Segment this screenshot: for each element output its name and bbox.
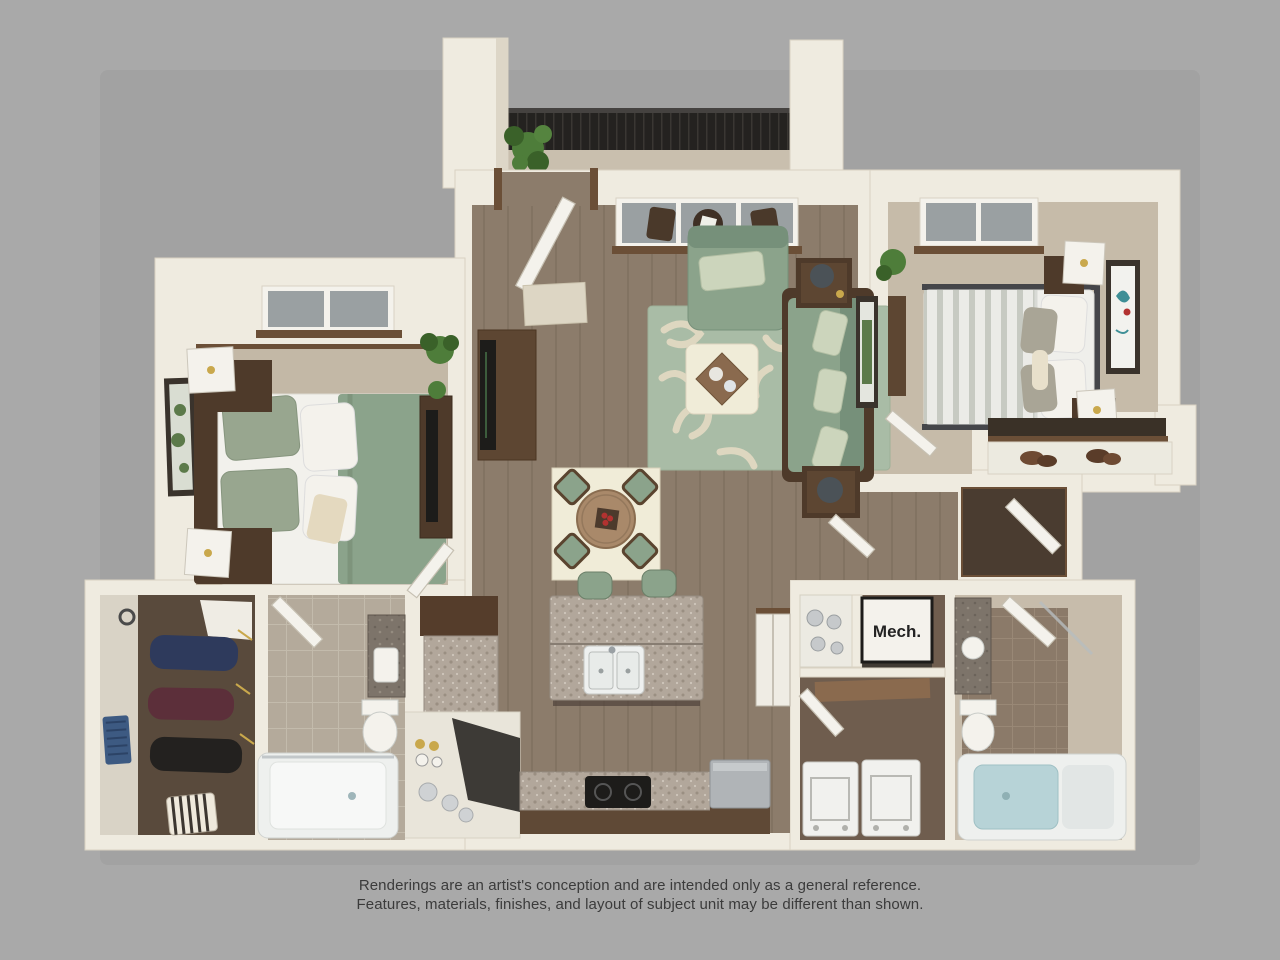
- table-lamp-icon: [810, 264, 834, 288]
- bathroom2-tub: [958, 754, 1126, 840]
- canister-icon: [827, 615, 841, 629]
- bed2-striped-duvet: [924, 290, 1036, 424]
- bowl-icon: [419, 783, 437, 801]
- balcony-pillar-left-shade: [496, 38, 508, 188]
- bar-stool: [578, 572, 612, 599]
- living-wall-art: [856, 296, 878, 408]
- garment-navy: [149, 634, 238, 671]
- bathroom2: [955, 595, 1126, 840]
- canister-icon: [429, 741, 439, 751]
- bowl-icon: [459, 808, 473, 822]
- bed1-pillow: [220, 468, 299, 534]
- armchair-pillow: [698, 251, 765, 292]
- bedroom1-media-dresser: [420, 381, 452, 538]
- bedroom2-window: [914, 198, 1044, 254]
- vanity-sink: [962, 637, 984, 659]
- mech-room: Mech.: [862, 598, 932, 668]
- disclaimer-line1: Renderings are an artist's conception an…: [0, 876, 1280, 895]
- tub-water: [974, 765, 1058, 829]
- armchair: [688, 226, 788, 330]
- bar-stool: [642, 570, 676, 597]
- bedroom2-window-sill: [914, 246, 1044, 254]
- bedroom1-nightstand-bottom: [184, 528, 272, 584]
- floorplan-rendering: Mech.: [0, 0, 1280, 960]
- ottoman-coffee-table: [686, 344, 758, 414]
- laundry-counter: [815, 678, 931, 702]
- canister-icon: [831, 642, 843, 654]
- bathroom2-toilet: [960, 700, 996, 751]
- bedroom1-wall-art: [164, 378, 198, 497]
- garment-maroon: [148, 687, 235, 720]
- balcony: [443, 38, 843, 192]
- bed1-pillow-white: [300, 402, 358, 472]
- dining-centerpiece: [595, 508, 620, 531]
- bed2-pillow-gray: [1020, 306, 1059, 355]
- canister-icon: [416, 754, 428, 766]
- laundry-shelf-unit: [800, 595, 852, 667]
- bowl-icon: [442, 795, 458, 811]
- side-table-north: [796, 258, 852, 308]
- canister-icon: [811, 637, 825, 651]
- canister-icon: [807, 610, 823, 626]
- dresser-plant-icon: [428, 381, 446, 399]
- bathroom1-vanity: [368, 615, 405, 697]
- canister-icon: [432, 757, 442, 767]
- floorplan-page: Mech.: [0, 0, 1280, 960]
- balcony-railing-cap: [503, 108, 792, 113]
- disclaimer-text: Renderings are an artist's conception an…: [0, 876, 1280, 914]
- shoe-icon: [1103, 453, 1121, 465]
- balcony-pillar-right: [790, 40, 843, 188]
- tub-seat: [1062, 765, 1114, 829]
- bathroom1-tub: [258, 753, 398, 838]
- mech-room-label: Mech.: [873, 622, 921, 641]
- bistro-chair-icon: [646, 206, 676, 241]
- door-mat: [523, 282, 587, 325]
- bathroom1-toilet: [362, 700, 398, 752]
- bedroom2-wall-art: [1106, 260, 1140, 374]
- garment-dark: [149, 736, 242, 773]
- kitchen-west-cabinets: [420, 596, 498, 712]
- kitchen-corner-counter: [398, 712, 520, 838]
- closet-shelf-floor: [988, 442, 1172, 474]
- disclaimer-line2: Features, materials, finishes, and layou…: [0, 895, 1280, 914]
- closet-wall-face: [100, 595, 138, 835]
- tv-icon: [480, 340, 496, 450]
- laundry-wall-band: [800, 668, 945, 677]
- side-table-south: [802, 466, 860, 518]
- refrigerator: [710, 760, 770, 834]
- tote-board: [102, 715, 131, 765]
- table-lamp-icon: [817, 477, 843, 503]
- bathroom1: [258, 595, 405, 840]
- bedroom1-window-sill: [256, 330, 402, 338]
- faucet-icon: [609, 647, 616, 654]
- storage-basket: [166, 793, 218, 836]
- kitchen-island: [550, 596, 703, 706]
- tv-icon: [426, 410, 438, 522]
- bed2-bolster: [1032, 350, 1048, 390]
- walkin-closet: [100, 595, 255, 835]
- canister-icon: [415, 739, 425, 749]
- laundry-room: Mech.: [799, 595, 945, 840]
- closet-trim: [988, 436, 1168, 442]
- bedroom1-window: [256, 286, 402, 338]
- dryer: [862, 760, 920, 836]
- dining-area: [552, 468, 660, 580]
- washer: [803, 762, 858, 836]
- pantry-cabinet: [756, 608, 790, 706]
- cooktop: [585, 776, 651, 808]
- bathroom2-vanity: [955, 598, 991, 694]
- vanity-sink: [374, 648, 398, 682]
- bedroom2-closet: [988, 418, 1172, 474]
- shoe-icon: [1037, 455, 1057, 467]
- bedroom2-dresser: [888, 296, 906, 396]
- island-sink: [584, 646, 644, 694]
- living-tv-console: [478, 330, 536, 460]
- bedroom1-baseboard-trim: [196, 344, 448, 349]
